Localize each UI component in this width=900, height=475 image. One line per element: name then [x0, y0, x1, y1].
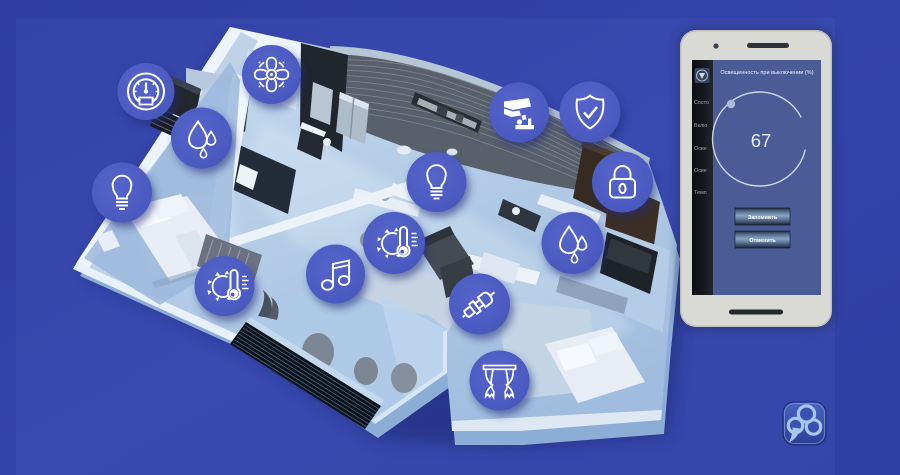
svg-text:Запомнить: Запомнить: [748, 215, 778, 221]
svg-text:Темп: Темп: [694, 190, 707, 196]
svg-text:Осве: Осве: [694, 146, 707, 152]
svg-text:Освещенность при выключении (%: Освещенность при выключении (%): [720, 70, 813, 76]
svg-text:Состо: Состо: [694, 100, 709, 106]
svg-text:67: 67: [751, 130, 772, 151]
svg-text:Отменить: Отменить: [749, 238, 776, 244]
svg-text:Вклю: Вклю: [694, 123, 707, 129]
svg-text:Осве: Осве: [694, 168, 707, 174]
